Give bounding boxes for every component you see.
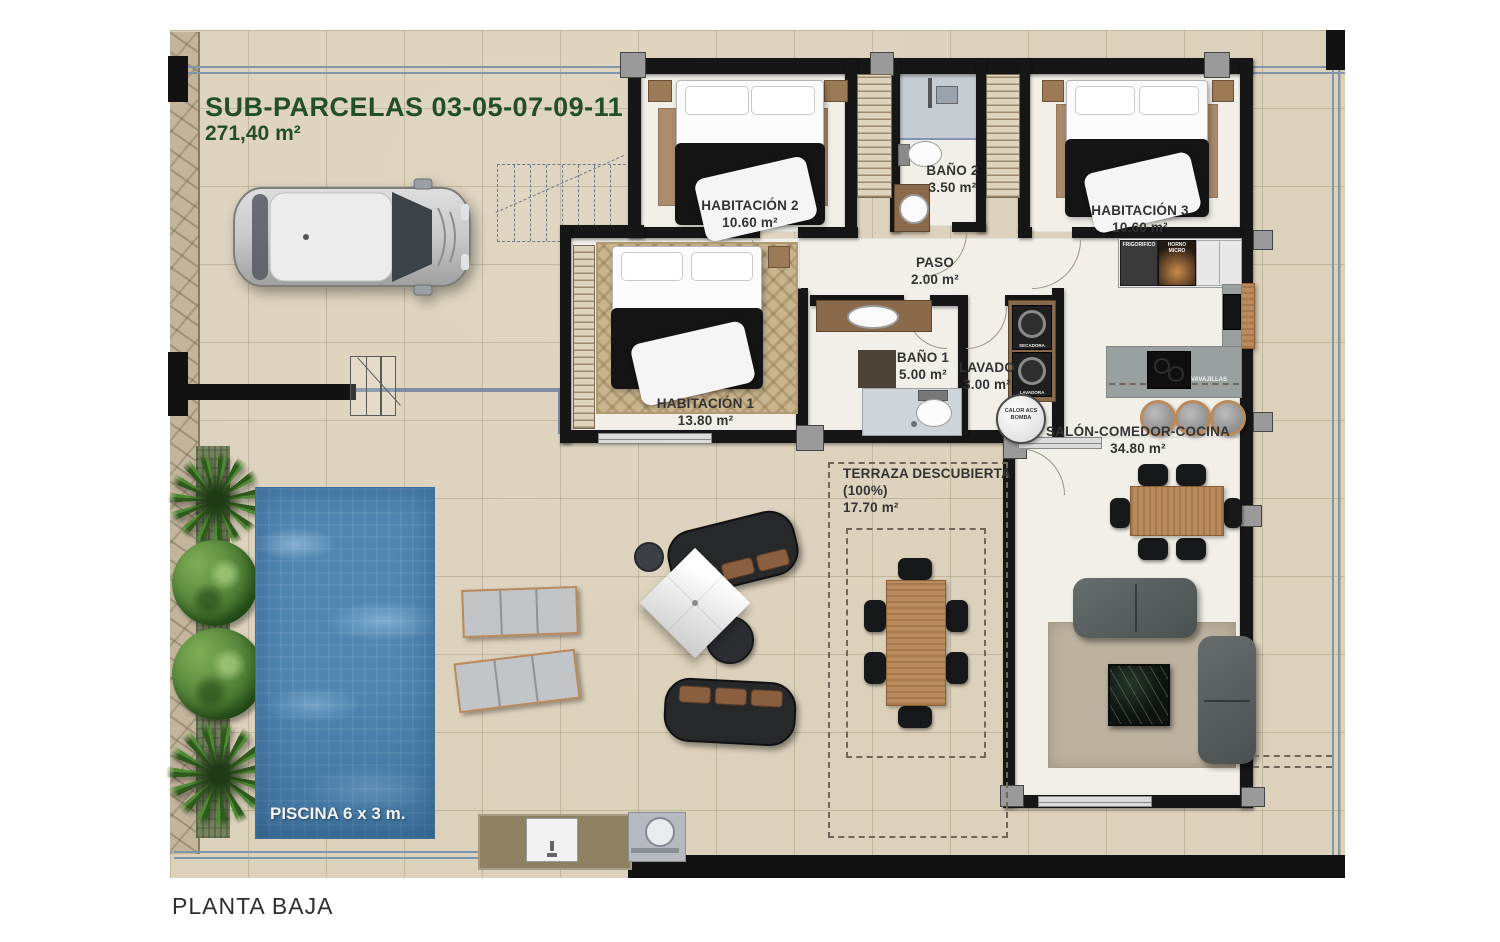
- room-name: PASO: [885, 255, 985, 272]
- outdoor-dining-table: [886, 580, 946, 706]
- pillow: [751, 86, 815, 115]
- room-area: 34.80 m²: [1028, 441, 1248, 458]
- oven-microwave: HORNO MICRO: [1158, 240, 1196, 286]
- duvet: [611, 308, 763, 389]
- dryer-door: [1018, 310, 1046, 338]
- sofa-cushion: [720, 557, 755, 581]
- outdoor-chair: [864, 652, 886, 684]
- dining-chair: [1138, 538, 1168, 560]
- dining-chair: [1138, 464, 1168, 486]
- hab3-nightstand-right: [1212, 80, 1234, 102]
- room-area: 3.50 m²: [915, 180, 990, 197]
- faucet-icon: [550, 841, 554, 851]
- lounger-divider: [499, 591, 503, 635]
- heat-pump-label: CALOR ACS BOMBA: [1001, 408, 1041, 421]
- pillow: [1139, 86, 1199, 115]
- room-area: 17.70 m²: [843, 500, 1043, 517]
- room-area: 10.60 m²: [640, 215, 860, 232]
- perimeter-wall-top-right-stub: [1326, 30, 1345, 70]
- pillow: [685, 86, 749, 115]
- outdoor-chair: [864, 600, 886, 632]
- plan-title: SUB-PARCELAS 03-05-07-09-11: [205, 92, 623, 123]
- room-label-bano2: BAÑO 2 3.50 m²: [915, 163, 990, 197]
- outdoor-chair: [898, 706, 932, 728]
- sofa-cushion: [750, 689, 783, 708]
- pillar: [870, 52, 894, 76]
- room-area: 2.00 m²: [885, 272, 985, 289]
- floor-plan-page: PISCINA 6 x 3 m.: [0, 0, 1500, 942]
- induction-hob: [1147, 351, 1191, 389]
- stair-tread: [380, 357, 382, 415]
- lounger-divider: [531, 656, 539, 702]
- wall-bano2-bottom-right: [952, 222, 986, 232]
- room-name: BAÑO 2: [915, 163, 990, 180]
- dryer-label: SECADORA: [1013, 343, 1051, 348]
- dining-chair: [1176, 464, 1206, 486]
- passage-dashed-line: [1253, 755, 1332, 757]
- fridge-label: FRIGORIFICO: [1121, 243, 1157, 249]
- room-area: 10.60 m²: [1035, 220, 1245, 237]
- shower-arm: [928, 78, 932, 108]
- room-label-habitacion3: HABITACIÓN 3 10.60 m²: [1035, 203, 1245, 237]
- shower-head-icon: [936, 86, 958, 104]
- room-name: HABITACIÓN 3: [1035, 203, 1245, 220]
- pillow: [1075, 86, 1135, 115]
- pillar: [620, 52, 646, 78]
- pillow: [691, 252, 753, 281]
- plan-title-area: 271,40 m²: [205, 122, 301, 146]
- room-name: TERRAZA DESCUBIERTA (100%): [843, 466, 1043, 500]
- pillar: [1253, 230, 1273, 250]
- room-name: HABITACIÓN 2: [640, 198, 860, 215]
- room-label-salon: SALÓN-COMEDOR-COCINA 34.80 m²: [1028, 424, 1248, 458]
- boundary-line-right: [1332, 66, 1340, 878]
- lounger-divider: [493, 660, 501, 706]
- outdoor-sink: [526, 818, 578, 862]
- palm-plant-1: [168, 452, 264, 548]
- bush-2: [172, 628, 264, 720]
- oven-label: HORNO MICRO: [1159, 243, 1195, 255]
- sun-lounger-1: [461, 586, 579, 638]
- sink-basin: [899, 194, 929, 224]
- wardrobe-habitacion1: [573, 245, 595, 429]
- sofa-seam: [1204, 700, 1250, 702]
- room-name: LAVADO: [942, 360, 1032, 377]
- boundary-line-top-left: [174, 66, 628, 74]
- sofa-vertical: [1198, 636, 1256, 764]
- wall-hab1-left: [560, 225, 571, 443]
- shower-bar: [631, 848, 679, 853]
- lounger-divider: [535, 589, 539, 633]
- dining-chair: [1110, 498, 1130, 528]
- swimming-pool: PISCINA 6 x 3 m.: [255, 487, 435, 839]
- sofa-seam: [1135, 584, 1137, 632]
- pillar: [1253, 412, 1273, 432]
- window-hab1: [598, 433, 712, 444]
- room-label-habitacion2: HABITACIÓN 2 10.60 m²: [640, 198, 860, 232]
- room-label-paso: PASO 2.00 m²: [885, 255, 985, 289]
- kitchen-cabinet: [1196, 240, 1242, 286]
- perimeter-wall-bottom: [628, 855, 1345, 878]
- outdoor-side-table-small: [634, 542, 664, 572]
- pillar: [1204, 52, 1230, 78]
- car-top-view: [228, 178, 476, 296]
- hab1-nightstand: [768, 246, 790, 268]
- room-area: 3.00 m²: [942, 377, 1032, 394]
- window-mullion: [599, 439, 711, 440]
- stair-diagonal: [357, 357, 401, 405]
- sink-basin: [847, 305, 899, 329]
- room-name: HABITACIÓN 1: [598, 396, 813, 413]
- window-mullion: [1039, 802, 1151, 803]
- sofa-cushion: [678, 685, 711, 704]
- outdoor-chair: [898, 558, 932, 580]
- dining-chair: [1224, 498, 1242, 528]
- drain-icon: [911, 421, 917, 427]
- bush-1: [172, 540, 258, 626]
- wall-hab1-top: [560, 225, 644, 238]
- wall-hab3-bottom-left: [1018, 227, 1032, 238]
- bano2-shower-floor: [900, 74, 976, 140]
- wardrobe-habitacion3: [986, 74, 1020, 198]
- room-label-lavado: LAVADO 3.00 m²: [942, 360, 1032, 394]
- sofa-horizontal: [1073, 578, 1197, 638]
- hab2-nightstand-left: [648, 80, 672, 102]
- wardrobe-habitacion2: [857, 74, 892, 198]
- pillar: [1241, 787, 1265, 807]
- kitchen-sink: [1223, 294, 1241, 330]
- hab3-bed: [1066, 80, 1208, 216]
- sofa-cushion: [755, 548, 790, 572]
- outdoor-shower-panel: [628, 812, 686, 862]
- toilet-bowl: [916, 399, 952, 427]
- fridge: FRIGORIFICO: [1120, 240, 1158, 286]
- outdoor-chair: [946, 652, 968, 684]
- bano1-vanity: [816, 300, 932, 332]
- hab3-nightstand-left: [1042, 80, 1064, 102]
- wall-stub-left-top: [168, 56, 188, 102]
- window-salon: [1038, 796, 1152, 807]
- hab2-nightstand-right: [824, 80, 848, 102]
- pillow: [621, 252, 683, 281]
- sofa-cushion: [714, 687, 747, 706]
- stair-tread: [530, 165, 531, 241]
- outdoor-sofa-2: [662, 677, 797, 748]
- room-label-habitacion1: HABITACIÓN 1 13.80 m²: [598, 396, 813, 430]
- kitchen-island: LAVAVAJILLAS: [1106, 346, 1242, 398]
- dryer-machine: SECADORA: [1012, 305, 1052, 350]
- driveway-wall: [174, 384, 356, 400]
- faucet-icon: [547, 853, 557, 857]
- dining-table: [1130, 486, 1224, 536]
- pool-label: PISCINA 6 x 3 m.: [270, 804, 405, 824]
- room-name: SALÓN-COMEDOR-COCINA: [1028, 424, 1248, 441]
- plan-footer: PLANTA BAJA: [172, 893, 333, 920]
- cabinet-divider: [1219, 241, 1220, 285]
- pillar: [1240, 505, 1262, 527]
- hab1-bed: [612, 246, 762, 388]
- outdoor-chair: [946, 600, 968, 632]
- room-area: 13.80 m²: [598, 413, 813, 430]
- shower-head-icon: [645, 817, 675, 847]
- hob-burner: [1168, 366, 1184, 382]
- wall-bano2-closet: [976, 58, 986, 232]
- room-label-terraza: TERRAZA DESCUBIERTA (100%) 17.70 m²: [843, 466, 1043, 517]
- stair-tread: [546, 165, 547, 241]
- outdoor-counter: [478, 814, 632, 870]
- coffee-table: [1108, 664, 1170, 726]
- wall-top: [628, 58, 1253, 74]
- passage-dashed-line: [1253, 766, 1332, 768]
- small-stair: [350, 356, 396, 416]
- dining-chair: [1176, 538, 1206, 560]
- window-kitchen-wood: [1240, 283, 1255, 349]
